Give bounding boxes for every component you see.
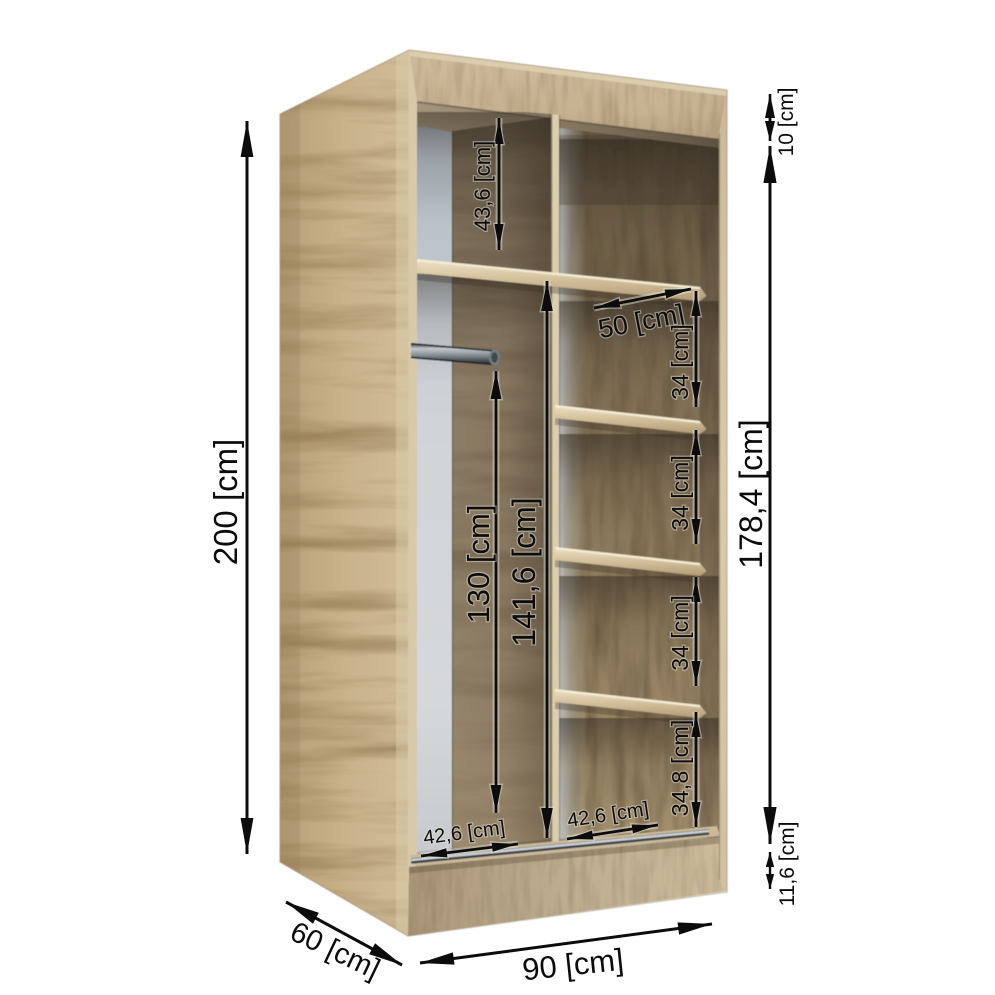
svg-text:11,6 [cm]: 11,6 [cm] [776, 822, 799, 907]
svg-text:34 [cm]: 34 [cm] [667, 455, 693, 530]
svg-text:34 [cm]: 34 [cm] [667, 324, 693, 399]
svg-text:178,4 [cm]: 178,4 [cm] [733, 419, 769, 568]
svg-text:200 [cm]: 200 [cm] [207, 439, 244, 566]
svg-text:130 [cm]: 130 [cm] [461, 505, 496, 624]
svg-text:34,8 [cm]: 34,8 [cm] [667, 720, 693, 817]
svg-text:43,6 [cm]: 43,6 [cm] [470, 141, 495, 231]
svg-text:141,6 [cm]: 141,6 [cm] [506, 497, 542, 646]
svg-text:10 [cm]: 10 [cm] [775, 88, 798, 157]
svg-text:34 [cm]: 34 [cm] [667, 595, 693, 670]
